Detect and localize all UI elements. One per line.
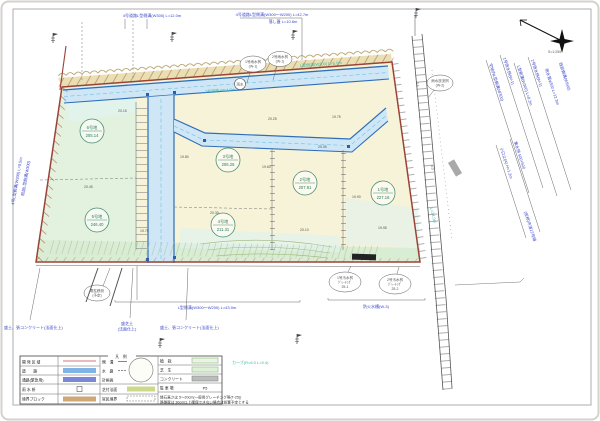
legend-label: 境界ブロック [22,397,45,402]
legend-label: 側 溝 [102,360,114,365]
top-dim-2b: 落し蓋 L=10.6m [269,18,298,24]
swatch-boundary [127,396,155,401]
svg-text:ｸﾞﾚｰﾁﾝｸﾞ: ｸﾞﾚｰﾁﾝｸﾞ [388,282,402,287]
site-plan-page: S=1:250 6号地 205.14 3号地 206.26 2号地 207.91… [0,0,600,421]
svg-text:19.90: 19.90 [352,195,361,199]
svg-text:19.75: 19.75 [332,115,341,119]
svg-text:雨水放流桝: 雨水放流桝 [431,78,449,83]
svg-text:20.45: 20.45 [84,185,93,189]
svg-text:2号汚水桝: 2号汚水桝 [387,277,403,282]
legend-label: 芝付法面 [102,387,117,392]
swatch-basin [77,387,82,392]
svg-text:20.25: 20.25 [268,117,277,121]
svg-text:19.70: 19.70 [140,229,149,233]
existing-structure [352,254,376,261]
legend-note-2: 路盤厚は 30cm以上確保できない場合は設置予定とする [160,400,249,405]
svg-text:2号雨水桝: 2号雨水桝 [272,54,288,59]
bottom-note: 盛土、張コンクリート(法面仕上) [160,324,219,330]
swatch-planting [192,358,218,363]
swatch-concrete [192,376,218,381]
side-note: カーブ(R=6.0 L=9.4) [232,359,269,365]
plot-name: 1号地 [378,186,390,193]
svg-text:25-1: 25-1 [341,285,348,289]
legend-label: 開 発 区 域 [22,360,41,365]
legend-label: コンクリート [160,377,183,382]
legend-label: 水 路 [102,369,114,374]
svg-text:19.80: 19.80 [180,155,189,159]
swatch-emergency [63,377,96,382]
legend-label: 駐 車 場 [160,386,174,391]
legend-circle-symbol [129,358,153,382]
plot-circle: 6号地 205.14 [80,119,104,143]
manhole: 雨水 [235,79,246,90]
bottom-note: (法面仕上) [118,326,137,332]
svg-text:電柱移設: 電柱移設 [90,288,104,293]
plot-circle: 3号地 206.26 [216,148,240,172]
svg-text:20.30: 20.30 [210,211,219,215]
legend-label: 通路(緊急用) [22,378,44,383]
swatch-grass [192,367,218,372]
scale-label: S=1:250 [548,50,561,54]
swatch-road [63,368,96,373]
svg-text:(予定): (予定) [92,293,101,298]
bottom-note: 盛芝土 [121,320,133,326]
svg-text:雨水: 雨水 [237,82,244,87]
plot-area: 205.14 [86,133,99,138]
svg-text:ｸﾞﾚｰﾁﾝｸﾞ: ｸﾞﾚｰﾁﾝｸﾞ [338,280,352,285]
plot-name: 3号地 [223,153,235,160]
plot-name: 6号地 [87,124,99,131]
legend-label: 道 路 [22,369,37,374]
plot-name: 5号地 [92,213,104,220]
legend-title: 凡 例 [115,354,127,359]
svg-text:(W-2): (W-2) [436,84,445,88]
bottom-dim: 防火水槽(W-3) [363,303,390,309]
legend-label: 官民境界 [102,397,117,402]
plot-area: 227.16 [377,195,390,200]
legend-label: 雨 水 枡 [22,387,36,392]
legend-parking-value: P5 [203,387,208,391]
legend-note-1: 縁石高さは 5〜20cm(一般用グレーチング等(T-25)) [160,395,241,400]
plot-circle: 2号地 207.91 [293,171,317,195]
bottom-note: 盛土、張コンクリート(法面仕上) [4,324,63,330]
legend-label: 計画高 [102,378,114,383]
plot-name: 2号地 [300,176,312,183]
svg-text:1号雨水桝: 1号雨水桝 [245,59,261,64]
svg-text:(W-1): (W-1) [249,65,258,69]
svg-text:19.95: 19.95 [378,226,387,230]
plot-area: 246.40 [91,222,104,227]
plot-circle: 4号地 211.31 [211,213,235,237]
swatch-block [63,397,96,402]
plot-area: 207.91 [299,185,312,190]
svg-text:20.05: 20.05 [318,145,327,149]
svg-text:(W-1): (W-1) [276,60,285,64]
svg-text:3.6: 3.6 [415,82,420,87]
swatch-lawn-slope [127,387,155,392]
plot-name: 4号地 [218,218,230,225]
site-plan-drawing: S=1:250 6号地 205.14 3号地 206.26 2号地 207.91… [0,0,600,421]
plot-area: 206.26 [222,162,235,167]
svg-text:19.60: 19.60 [262,165,271,169]
svg-text:1号汚水桝: 1号汚水桝 [337,275,353,280]
svg-text:4.0: 4.0 [430,165,435,170]
plot-area: 211.31 [217,227,230,232]
top-dim-2: 4号道路L型側溝(W300〜W200) L=42.7m [236,11,309,17]
top-dim-1: 4号道路L型側溝(W300) L=12.0m [123,12,182,18]
svg-text:20.15: 20.15 [118,109,127,113]
legend: 凡 例 開 発 区 域 道 路 通路(緊急用) 雨 水 枡 境界ブロック 側 溝… [20,352,249,405]
plot-circle: 5号地 246.40 [85,208,109,232]
legend-label: 植 栽 [160,359,172,364]
legend-label: 芝 生 [160,368,172,373]
svg-text:20.10: 20.10 [300,228,309,232]
plot-circle: 1号地 227.16 [371,181,395,205]
svg-text:25-2: 25-2 [391,287,398,291]
